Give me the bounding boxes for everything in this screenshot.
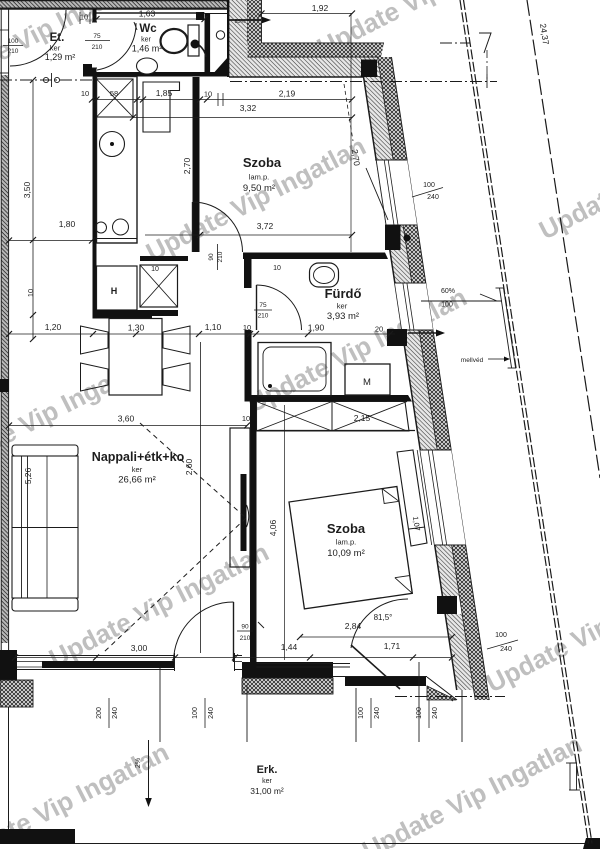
svg-text:240: 240 xyxy=(427,194,439,201)
svg-text:3,00: 3,00 xyxy=(131,643,148,653)
svg-text:10,09 m²: 10,09 m² xyxy=(327,548,365,559)
svg-text:1,20: 1,20 xyxy=(45,322,62,332)
svg-text:4,06: 4,06 xyxy=(268,519,278,536)
svg-text:100: 100 xyxy=(8,38,19,45)
svg-text:100: 100 xyxy=(416,707,423,719)
svg-text:210: 210 xyxy=(217,251,224,262)
svg-text:lam.p.: lam.p. xyxy=(336,538,356,547)
svg-text:75: 75 xyxy=(93,33,101,40)
svg-text:10: 10 xyxy=(204,90,212,99)
svg-text:1,46 m²: 1,46 m² xyxy=(132,44,163,54)
svg-text:2%: 2% xyxy=(135,758,142,768)
svg-text:240: 240 xyxy=(432,707,439,719)
svg-text:Szoba: Szoba xyxy=(327,521,366,536)
svg-text:10: 10 xyxy=(81,89,89,98)
svg-text:210: 210 xyxy=(258,313,269,320)
svg-text:75: 75 xyxy=(259,302,267,309)
svg-text:1,10: 1,10 xyxy=(205,322,222,332)
svg-text:100: 100 xyxy=(423,182,435,189)
svg-text:mellvéd: mellvéd xyxy=(461,357,484,364)
svg-text:20: 20 xyxy=(375,325,383,334)
svg-text:3,72: 3,72 xyxy=(257,221,274,231)
svg-text:1,63: 1,63 xyxy=(139,9,156,19)
svg-text:Nappali+étk+ko: Nappali+étk+ko xyxy=(92,450,185,464)
svg-text:240: 240 xyxy=(374,707,381,719)
svg-text:3,93 m²: 3,93 m² xyxy=(327,311,359,322)
svg-text:210: 210 xyxy=(240,635,251,642)
svg-text:10: 10 xyxy=(151,266,159,273)
svg-text:1,85: 1,85 xyxy=(156,88,173,98)
svg-text:H: H xyxy=(111,286,118,296)
svg-text:1,44: 1,44 xyxy=(281,642,298,652)
svg-text:ker: ker xyxy=(141,37,151,44)
svg-text:ker: ker xyxy=(262,778,272,785)
svg-text:240: 240 xyxy=(112,707,119,719)
svg-text:210: 210 xyxy=(92,44,103,51)
svg-text:9,50 m²: 9,50 m² xyxy=(243,183,275,194)
svg-text:1,30: 1,30 xyxy=(128,323,145,333)
svg-text:100: 100 xyxy=(358,707,365,719)
svg-text:Wc: Wc xyxy=(139,23,157,35)
svg-text:100: 100 xyxy=(495,632,507,639)
svg-text:2,15: 2,15 xyxy=(354,413,371,423)
svg-text:240: 240 xyxy=(500,646,512,653)
svg-text:1,71: 1,71 xyxy=(384,641,401,651)
svg-text:1,92: 1,92 xyxy=(312,3,329,13)
svg-text:31,00 m²: 31,00 m² xyxy=(250,786,284,796)
svg-text:10: 10 xyxy=(273,265,281,272)
svg-text:Fürdő: Fürdő xyxy=(325,286,362,301)
svg-text:10: 10 xyxy=(26,289,35,297)
svg-text:10: 10 xyxy=(80,13,88,22)
svg-text:5,26: 5,26 xyxy=(23,467,33,484)
svg-text:2,84: 2,84 xyxy=(345,621,362,631)
svg-text:210: 210 xyxy=(8,48,19,55)
svg-text:85%: 85% xyxy=(234,19,245,25)
svg-text:60%: 60% xyxy=(441,288,455,295)
svg-text:3,50: 3,50 xyxy=(22,181,32,198)
svg-text:lam.p.: lam.p. xyxy=(249,173,269,182)
svg-text:2,19: 2,19 xyxy=(279,89,296,99)
svg-text:26,66 m²: 26,66 m² xyxy=(118,475,156,486)
svg-text:3,32: 3,32 xyxy=(240,103,257,113)
svg-text:3,60: 3,60 xyxy=(118,414,135,424)
svg-text:10: 10 xyxy=(242,414,250,423)
svg-text:ker: ker xyxy=(132,465,143,474)
svg-text:1,29 m²: 1,29 m² xyxy=(45,52,76,62)
svg-text:1,80: 1,80 xyxy=(59,219,76,229)
svg-text:1,90: 1,90 xyxy=(308,323,325,333)
svg-text:90: 90 xyxy=(241,624,249,631)
svg-text:200: 200 xyxy=(96,707,103,719)
svg-text:ker: ker xyxy=(337,302,348,311)
svg-text:90: 90 xyxy=(208,253,215,261)
svg-text:100: 100 xyxy=(441,302,453,309)
svg-text:100: 100 xyxy=(192,707,199,719)
svg-text:2,70: 2,70 xyxy=(182,157,192,174)
svg-text:Et.: Et. xyxy=(50,32,65,44)
svg-text:Erk.: Erk. xyxy=(257,764,278,776)
svg-text:10: 10 xyxy=(243,323,251,332)
svg-text:M: M xyxy=(363,377,371,388)
svg-text:240: 240 xyxy=(208,707,215,719)
svg-text:Szoba: Szoba xyxy=(243,155,282,170)
svg-text:58: 58 xyxy=(110,89,118,98)
svg-text:81,5°: 81,5° xyxy=(374,613,393,622)
